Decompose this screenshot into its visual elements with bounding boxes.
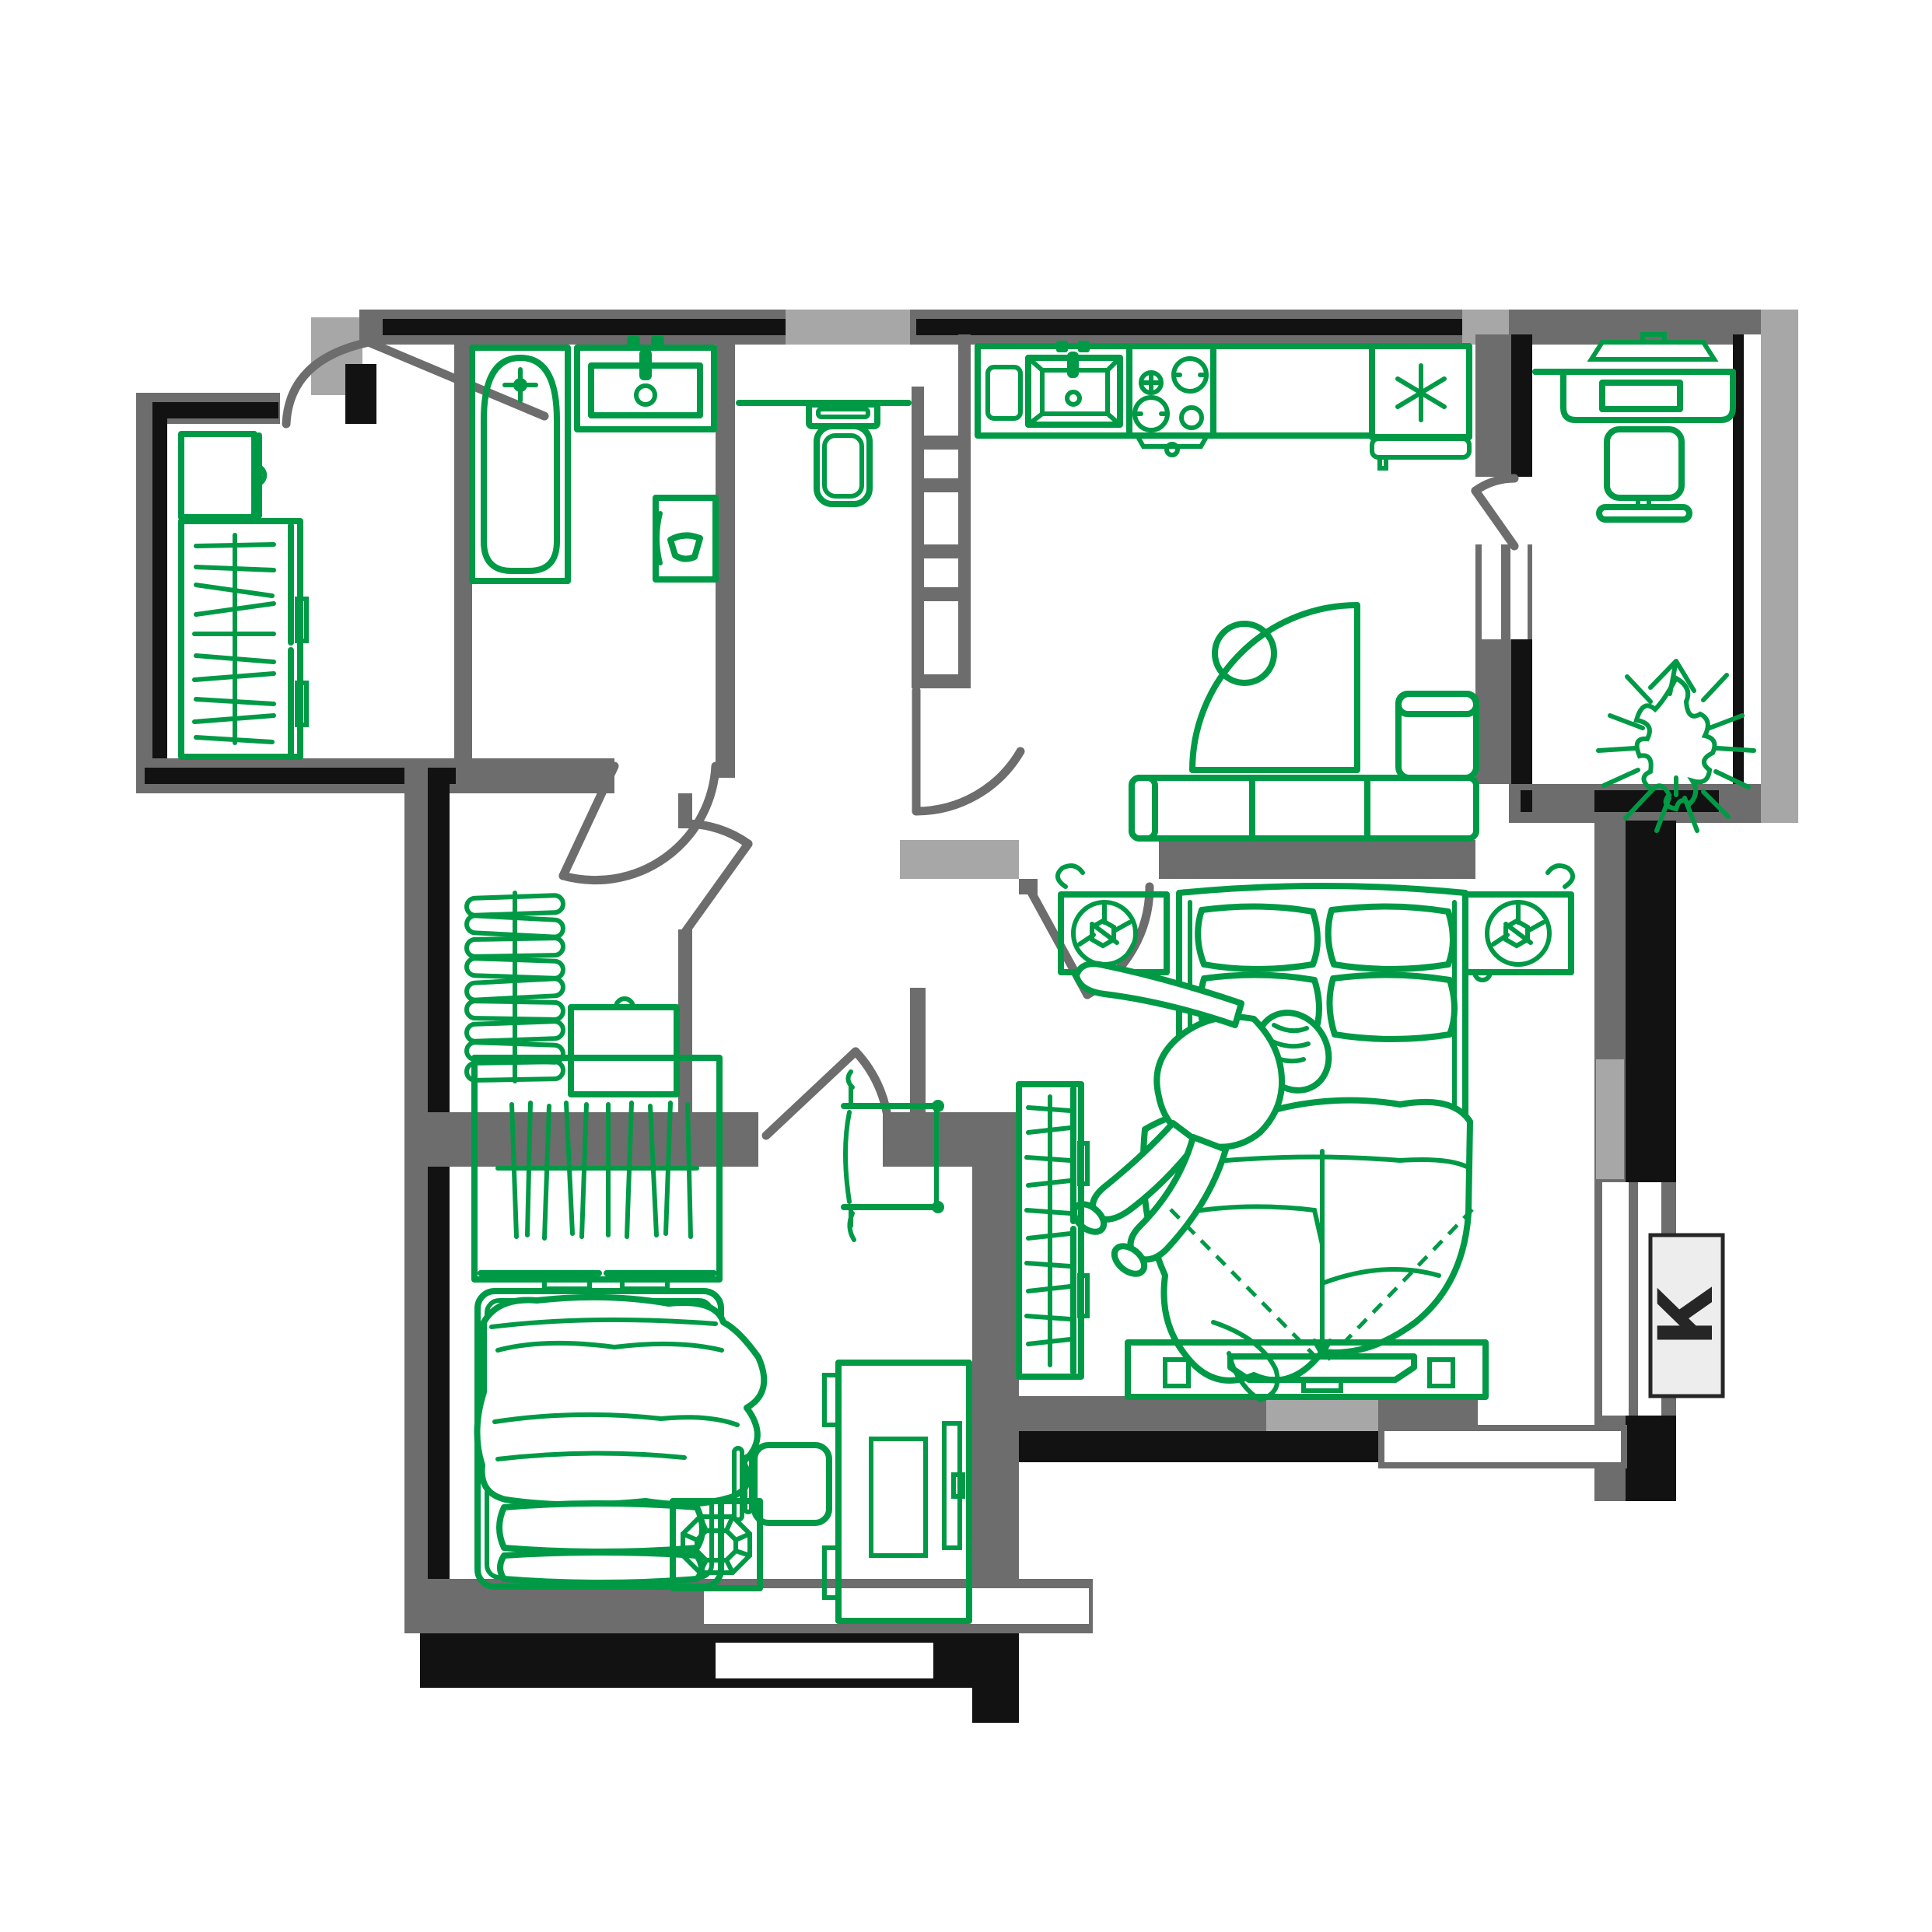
wall-core — [916, 319, 1462, 335]
wall — [404, 1112, 758, 1167]
nightstand-right — [1465, 866, 1573, 980]
wc — [739, 403, 908, 504]
riser-label: К — [1643, 1286, 1730, 1346]
wall — [678, 929, 692, 1116]
toilet — [809, 404, 877, 504]
floor-plan-page: К — [0, 0, 1932, 1932]
loggia — [1535, 334, 1754, 831]
riser-label-box: К — [1643, 1235, 1730, 1396]
loggia-outer-wall — [1761, 310, 1798, 823]
entry-hall — [181, 434, 306, 757]
loggia-desk — [1535, 372, 1733, 420]
wall — [786, 310, 910, 345]
ventilation-shaft — [912, 334, 971, 688]
wall-core — [152, 402, 167, 788]
balcony-door-arc — [1475, 478, 1514, 491]
wall — [1159, 840, 1475, 879]
laptop — [1602, 383, 1680, 409]
corner-sofa — [1132, 694, 1476, 838]
blanket — [477, 1297, 764, 1505]
kitchen-living-room — [978, 341, 1476, 838]
wall — [404, 758, 428, 1602]
floor-plan-svg: К — [0, 0, 1932, 1932]
wall — [910, 988, 926, 1116]
wall-core — [1626, 1416, 1676, 1501]
loggia-glazing — [1744, 334, 1761, 784]
wall — [972, 1112, 1019, 1579]
wall — [1475, 639, 1511, 784]
kids-window — [716, 1643, 933, 1678]
wall-core — [1511, 334, 1532, 477]
kitchen-sink — [1028, 341, 1120, 425]
wall-core — [383, 319, 786, 335]
wall-core — [428, 782, 450, 1602]
single-bed — [477, 1291, 764, 1587]
wall-inset — [1596, 1059, 1624, 1179]
living-loggia-window — [1475, 544, 1532, 639]
snowflake-icon — [1398, 366, 1444, 420]
wall-light-section — [1266, 1396, 1378, 1431]
pillow — [1198, 906, 1318, 969]
wardrobe — [1019, 1084, 1087, 1377]
wall — [1532, 784, 1594, 823]
quarter-round-table — [1192, 605, 1357, 770]
closet-door-leaf — [685, 844, 748, 932]
pc-tower — [871, 1439, 926, 1556]
pillow — [1328, 906, 1453, 969]
wall-core — [1511, 639, 1532, 784]
closet — [467, 893, 677, 1094]
master-bedroom — [1019, 866, 1573, 1400]
wc-door-arc — [916, 751, 1020, 811]
bathtub — [472, 348, 568, 581]
wall-core — [1019, 1431, 1378, 1462]
coat-rack-coil — [467, 893, 564, 1081]
wall — [883, 1112, 972, 1167]
bathroom — [472, 336, 716, 581]
balcony-door-leaf — [1475, 491, 1514, 546]
washing-machine — [656, 498, 716, 579]
wardrobe-with-hangers — [181, 521, 306, 757]
shoe-cabinet — [181, 434, 264, 517]
wall — [1475, 334, 1511, 477]
sink — [577, 336, 714, 429]
stove — [1135, 359, 1207, 455]
wall-jamb-core — [345, 364, 376, 424]
pillow — [1329, 975, 1454, 1039]
kids-door-leaf — [766, 1052, 856, 1136]
loggia-chair — [1599, 429, 1689, 520]
cutting-board — [988, 367, 1020, 418]
fridge — [1372, 346, 1469, 468]
wall-portal — [900, 840, 1019, 879]
appliance-box — [571, 999, 677, 1094]
wall-core — [1626, 821, 1676, 1182]
bedroom-bottom-window — [1378, 1425, 1627, 1468]
kitchen-counter — [978, 341, 1372, 455]
wall — [1509, 310, 1761, 345]
